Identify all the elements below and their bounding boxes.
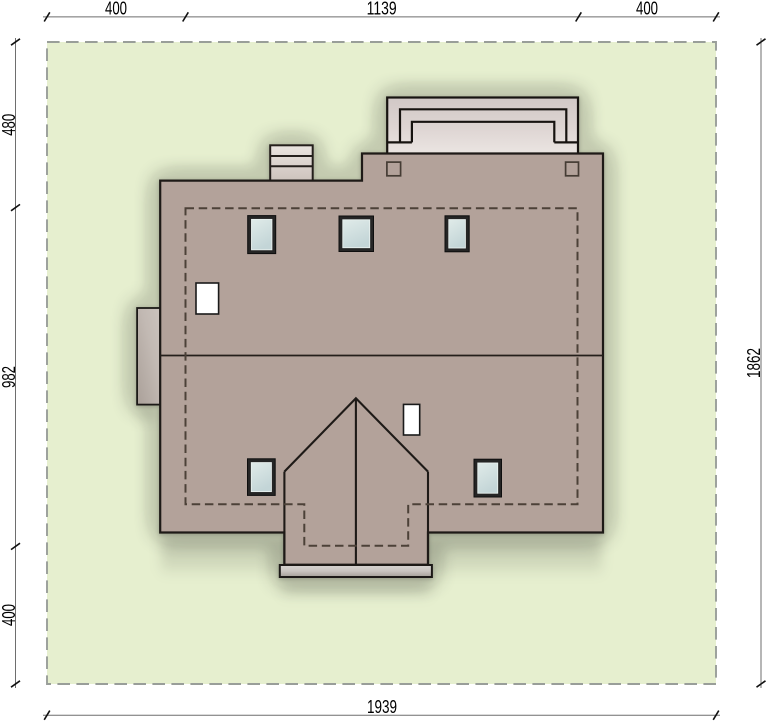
svg-text:982: 982: [0, 366, 19, 388]
svg-text:400: 400: [636, 0, 658, 19]
svg-text:1862: 1862: [744, 348, 764, 378]
svg-text:400: 400: [0, 604, 19, 626]
svg-text:480: 480: [0, 114, 19, 136]
svg-text:1139: 1139: [367, 0, 397, 19]
svg-text:1939: 1939: [367, 697, 397, 717]
svg-text:400: 400: [105, 0, 127, 19]
